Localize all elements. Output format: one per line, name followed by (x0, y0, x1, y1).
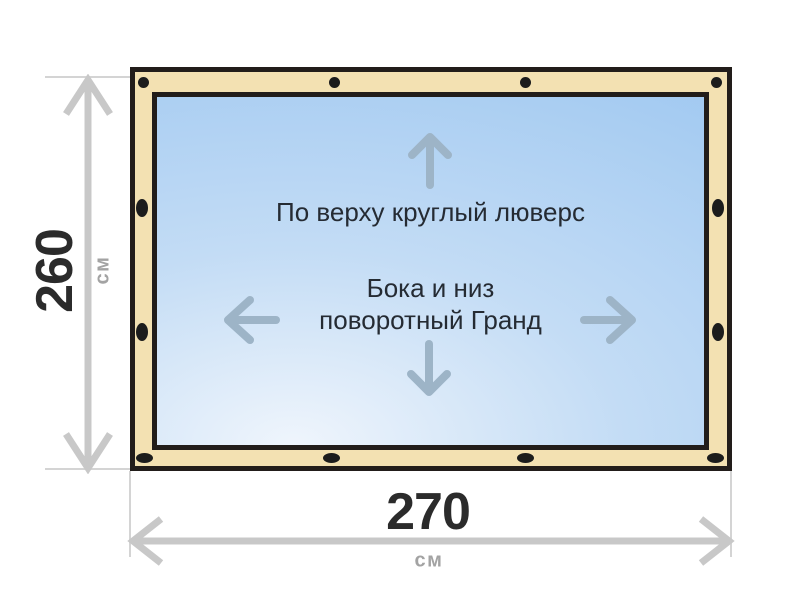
down-arrow-icon (407, 340, 451, 396)
round-grommet-icon (711, 77, 722, 88)
tarp-dimension-diagram: 260 см По верху круглый люверс Бока и ни… (0, 0, 800, 600)
turn-fastener-icon (517, 453, 534, 463)
width-dimension-value: 270 (386, 482, 470, 542)
side-bottom-fastening-note: Бока и низ поворотный Гранд (157, 272, 704, 336)
turn-fastener-icon (712, 199, 724, 217)
turn-fastener-icon (323, 453, 340, 463)
tarp-frame: По верху круглый люверс Бока и низ повор… (130, 67, 732, 471)
round-grommet-icon (520, 77, 531, 88)
side-bottom-fastening-note-line1: Бока и низ (157, 272, 704, 304)
top-fastening-note: По верху круглый люверс (157, 196, 704, 228)
tarp-panel: По верху круглый люверс Бока и низ повор… (152, 92, 709, 450)
turn-fastener-icon (136, 453, 153, 463)
turn-fastener-icon (707, 453, 724, 463)
turn-fastener-icon (136, 323, 148, 341)
side-bottom-fastening-note-line2: поворотный Гранд (157, 304, 704, 336)
turn-fastener-icon (136, 199, 148, 217)
round-grommet-icon (329, 77, 340, 88)
round-grommet-icon (138, 77, 149, 88)
width-dimension-unit: см (415, 550, 444, 573)
turn-fastener-icon (712, 323, 724, 341)
height-dimension-value: 260 (25, 229, 85, 313)
height-dimension-unit: см (92, 256, 115, 285)
up-arrow-icon (408, 133, 452, 189)
